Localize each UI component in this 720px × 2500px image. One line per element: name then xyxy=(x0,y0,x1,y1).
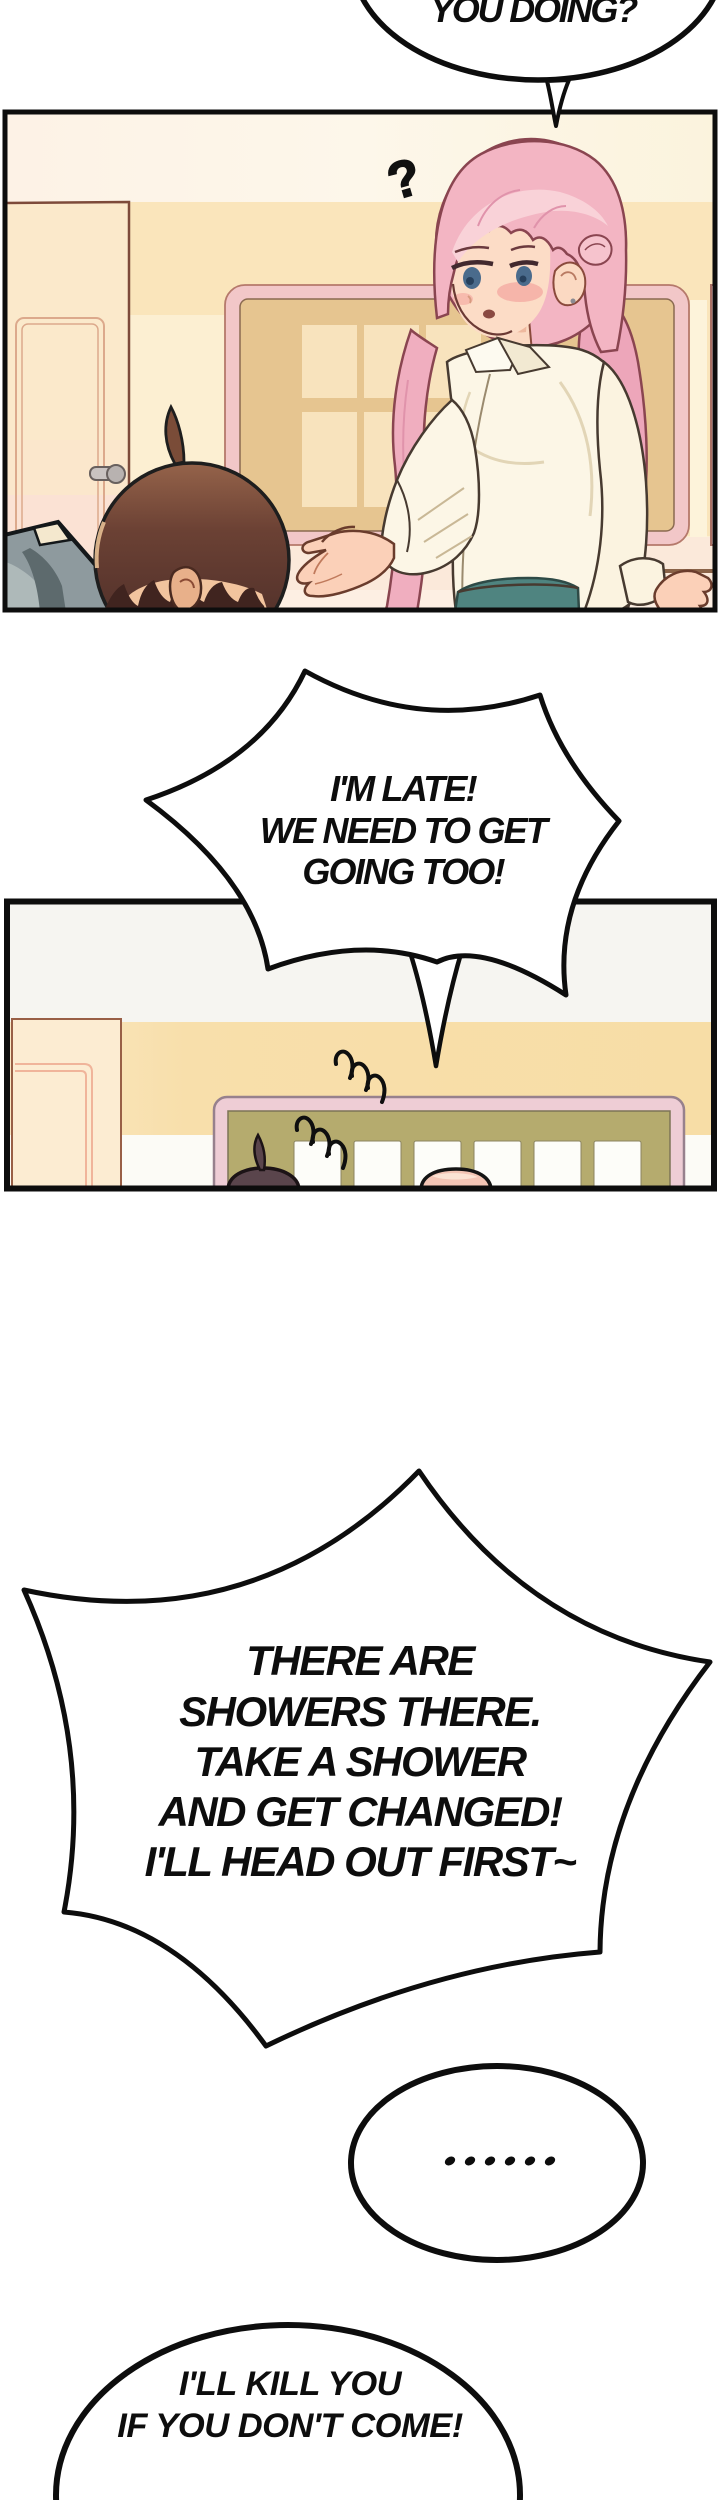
svg-text:IF YOU DON'T COME!: IF YOU DON'T COME! xyxy=(117,2407,462,2445)
svg-text:I'LL HEAD OUT FIRST~: I'LL HEAD OUT FIRST~ xyxy=(145,1838,577,1885)
svg-text:GOING TOO!: GOING TOO! xyxy=(302,851,505,892)
svg-text:TAKE A SHOWER: TAKE A SHOWER xyxy=(194,1738,527,1785)
svg-text:THERE ARE: THERE ARE xyxy=(246,1637,477,1684)
svg-text:AND GET CHANGED!: AND GET CHANGED! xyxy=(158,1788,564,1835)
svg-text:I'LL KILL YOU: I'LL KILL YOU xyxy=(179,2365,403,2403)
svg-text:I'M LATE!: I'M LATE! xyxy=(330,768,477,809)
svg-text:WE NEED TO GET: WE NEED TO GET xyxy=(260,810,551,851)
svg-text:SHOWERS THERE.: SHOWERS THERE. xyxy=(179,1688,541,1735)
svg-text:YOU DOING?: YOU DOING? xyxy=(430,0,638,30)
